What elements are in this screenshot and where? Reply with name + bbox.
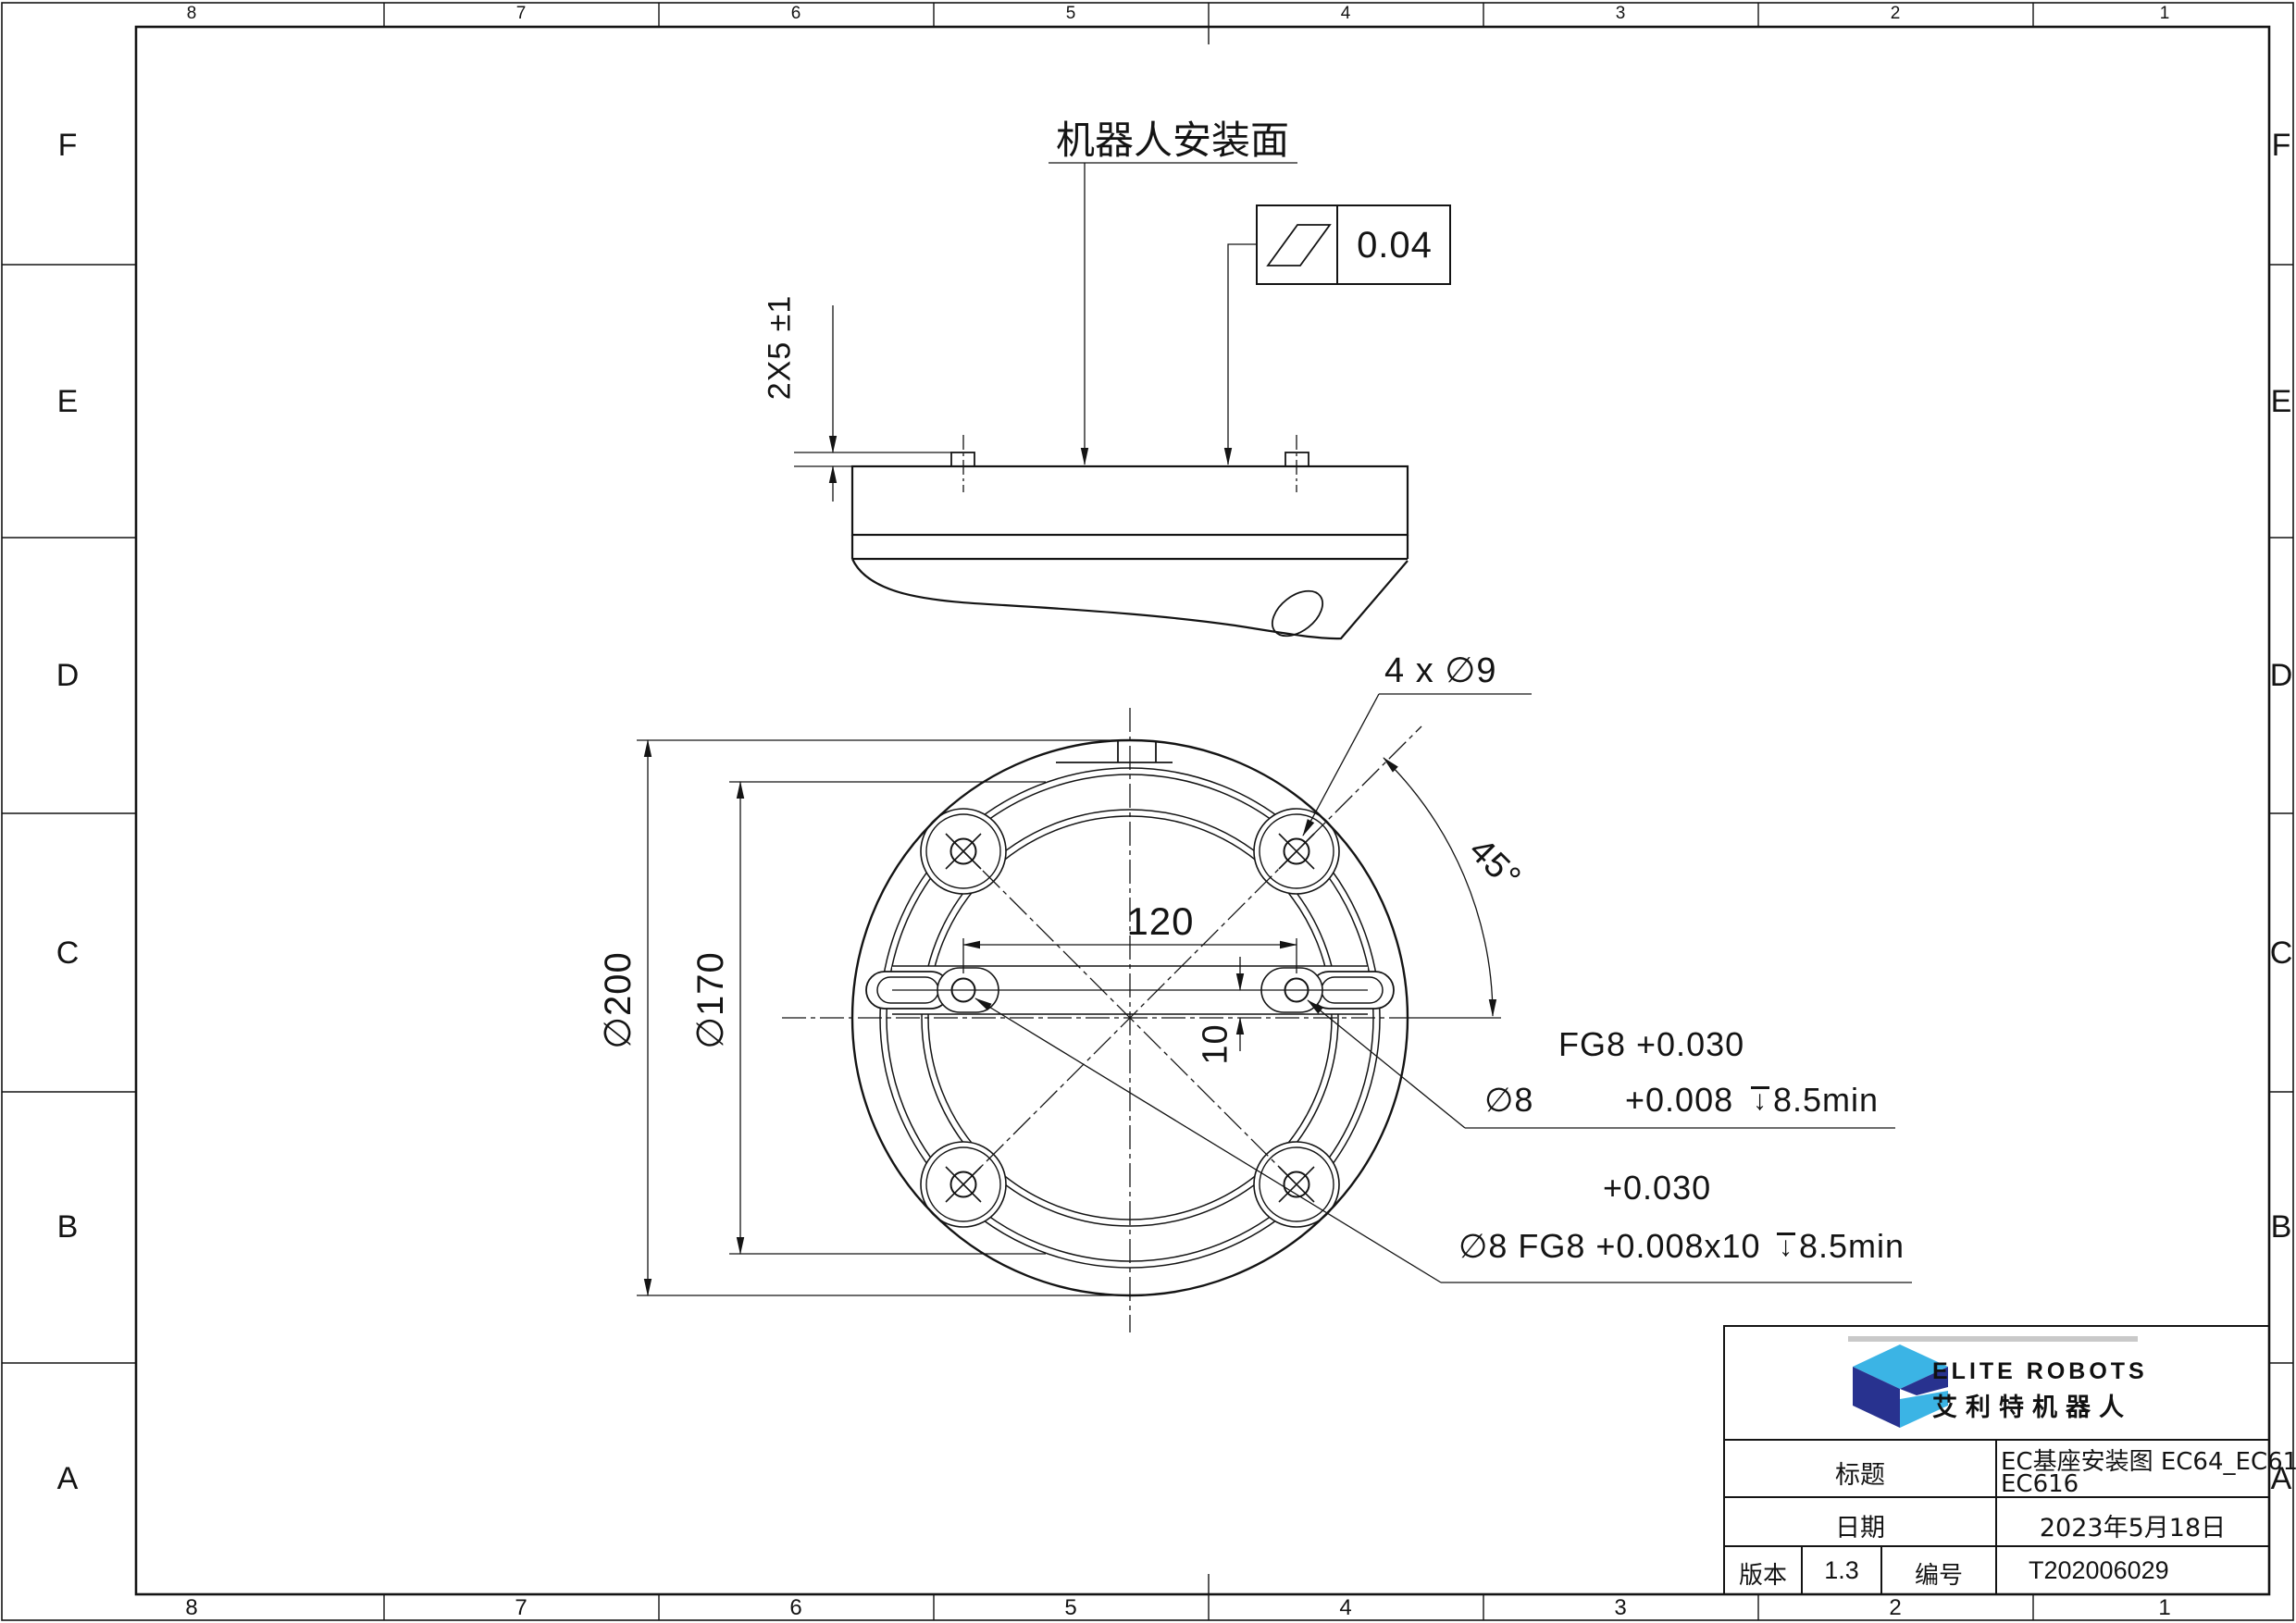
- zone-col-bottom: 3: [1602, 1598, 1639, 1618]
- callout-right-pin-tol: +0.008: [1625, 1081, 1733, 1120]
- zone-col-bottom: 8: [173, 1598, 210, 1618]
- zone-row-left: E: [54, 385, 81, 418]
- zone-col-bottom: 5: [1052, 1598, 1089, 1618]
- brand-name-cn: 艾利特机器人: [1932, 1387, 2132, 1423]
- zone-col-top: 7: [503, 4, 540, 24]
- number-value: T202006029: [2029, 1556, 2169, 1585]
- number-label: 编号: [1881, 1556, 1996, 1591]
- zone-col-bottom: 1: [2146, 1598, 2183, 1618]
- pin-dim-extension-lines: [794, 452, 951, 466]
- zone-row-left: F: [54, 129, 81, 162]
- callout-left-pin-line2: ∅8 FG8 +0.008x10: [1458, 1227, 1761, 1266]
- logo-gray-bar: [1848, 1336, 2138, 1342]
- brand-name-en: ELITE ROBOTS: [1932, 1358, 2148, 1385]
- zone-col-top: 4: [1327, 4, 1364, 24]
- bolt-holes-label: 4 x ∅9: [1384, 650, 1496, 691]
- version-label: 版本: [1724, 1556, 1802, 1591]
- pin-spacing-dimension: 120: [1105, 899, 1216, 944]
- outer-diameter-dimension: ∅200: [597, 935, 639, 1065]
- zone-col-top: 6: [777, 4, 814, 24]
- zone-row-right: D: [2267, 659, 2295, 692]
- zone-col-top: 2: [1877, 4, 1914, 24]
- callout-left-pin-line1: +0.030: [1603, 1169, 1711, 1208]
- zone-row-left: B: [54, 1210, 81, 1244]
- zone-col-top: 8: [173, 4, 210, 24]
- zone-row-right: C: [2267, 936, 2295, 970]
- zone-col-bottom: 2: [1877, 1598, 1914, 1618]
- zone-row-right: F: [2267, 129, 2295, 162]
- flatness-value: 0.04: [1343, 225, 1446, 266]
- pin-height-dimension: 2X5 ±1: [763, 274, 799, 422]
- flatness-icon: [1268, 225, 1330, 266]
- zone-row-left: C: [54, 936, 81, 970]
- zone-col-top: 3: [1602, 4, 1639, 24]
- zone-row-right: E: [2267, 385, 2295, 418]
- callout-right-pin-dia: ∅8: [1484, 1081, 1533, 1120]
- zone-col-bottom: 6: [777, 1598, 814, 1618]
- zone-col-bottom: 4: [1327, 1598, 1364, 1618]
- depth-icon: ↓: [1777, 1233, 1795, 1259]
- depth-icon: ↓: [1751, 1086, 1769, 1113]
- callout-right-pin-line1: FG8 +0.030: [1558, 1025, 1744, 1064]
- title-value-line2: EC616: [2001, 1470, 2079, 1498]
- pin-offset-dimension: 10: [1197, 1012, 1236, 1077]
- zone-row-right: B: [2267, 1210, 2295, 1244]
- zone-col-top: 1: [2146, 4, 2183, 24]
- plan-view: [782, 708, 1501, 1332]
- title-label: 标题: [1724, 1455, 1996, 1491]
- centerlines: [782, 708, 1421, 1332]
- zone-col-bottom: 7: [503, 1598, 540, 1618]
- callout-left-pin-depth: ↓8.5min: [1771, 1227, 1905, 1266]
- drawing-sheet: 8 7 6 5 4 3 2 1 8 7 6 5 4 3 2 1 F E D C …: [0, 0, 2296, 1623]
- zone-row-left: A: [54, 1462, 81, 1495]
- mounting-surface-label: 机器人安装面: [1043, 109, 1302, 166]
- date-value: 2023年5月18日: [1996, 1507, 2269, 1543]
- zone-col-top: 5: [1052, 4, 1089, 24]
- date-label: 日期: [1724, 1507, 1996, 1543]
- surface-leaders: [1049, 163, 1297, 465]
- top-tab: [1056, 740, 1173, 762]
- pin-centerlines: [963, 435, 1297, 492]
- version-value: 1.3: [1802, 1556, 1881, 1585]
- callout-right-pin-depth: ↓8.5min: [1745, 1081, 1879, 1120]
- bolt-circle-diameter-dimension: ∅170: [689, 935, 732, 1065]
- zone-row-left: D: [54, 659, 81, 692]
